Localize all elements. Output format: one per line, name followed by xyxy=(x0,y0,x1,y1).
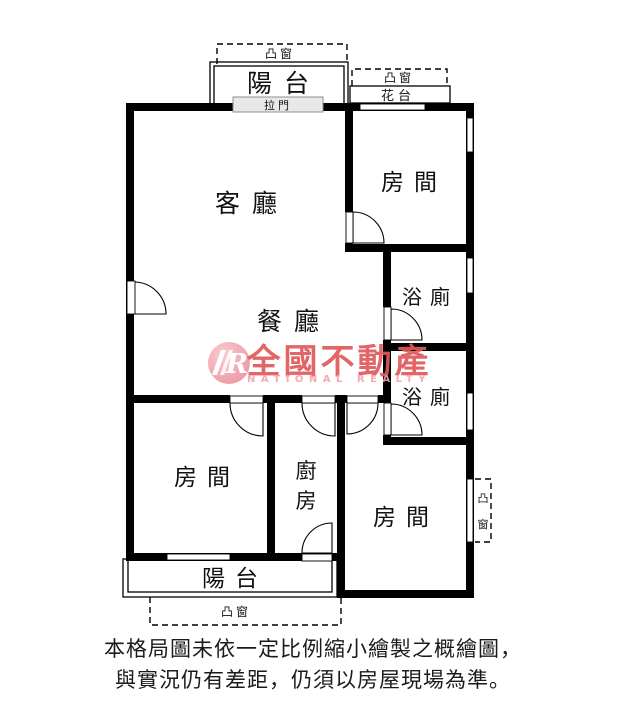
label-bay-window-top-right: 凸窗 xyxy=(384,71,414,85)
label-balcony-top: 陽台 xyxy=(247,69,321,98)
disclaimer-line-1: 本格局圖未依一定比例縮小繪製之概繪圖， xyxy=(0,634,626,665)
disclaimer: 本格局圖未依一定比例縮小繪製之概繪圖， 與實況仍有差距，仍須以房屋現場為準。 xyxy=(0,634,626,696)
bath-lower-door-panel xyxy=(384,403,391,435)
floorplan-drawing: 拉門 客廳 餐廳 房間 浴廁 浴廁 房間 房間 廚 xyxy=(0,0,626,725)
wall-bedroom-kitchen-divider xyxy=(267,395,275,561)
kitchen-balcony-door-swing xyxy=(302,523,332,553)
kitchen-top-door-panel xyxy=(302,396,335,403)
window-bath-upper-right xyxy=(467,258,473,293)
bedroom-r-door-panel xyxy=(347,396,378,403)
label-kitchen-char-1: 廚 xyxy=(296,459,317,483)
wall-room-tr-bottom xyxy=(345,244,474,252)
label-bathroom-lower: 浴廁 xyxy=(402,385,458,409)
bedroom-r-door-swing xyxy=(347,403,378,434)
label-bay-right-char-2: 窗 xyxy=(478,517,489,531)
label-living-room: 客廳 xyxy=(215,189,289,218)
room-tr-door-swing xyxy=(353,212,384,243)
wall-bath-bottom xyxy=(383,437,474,445)
label-room-top-right: 房間 xyxy=(381,170,447,196)
label-room-bottom-left: 房間 xyxy=(174,465,240,491)
wall-dining-bottom-a xyxy=(126,395,230,403)
window-room-tr-right xyxy=(467,118,473,152)
label-bay-window-bottom: 凸窗 xyxy=(221,605,251,619)
wall-dining-bottom-d xyxy=(378,395,391,403)
label-kitchen-char-2: 房 xyxy=(296,489,317,513)
wall-left xyxy=(126,103,134,561)
entry-door-swing xyxy=(134,282,166,314)
sliding-door-label: 拉門 xyxy=(264,98,292,112)
watermark-brand-en: NATIONAL REALTY xyxy=(247,374,431,385)
bedroom-l-door-swing xyxy=(230,403,263,436)
label-bay-window-right-vertical: 凸 窗 xyxy=(478,492,489,531)
label-bay-right-char-1: 凸 xyxy=(478,492,489,505)
disclaimer-line-2: 與實況仍有差距，仍須以房屋現場為準。 xyxy=(0,665,626,696)
bay-window-right-outline xyxy=(475,479,491,542)
kitchen-top-door-swing xyxy=(302,403,335,436)
floorplan-page: 拉門 客廳 餐廳 房間 浴廁 浴廁 房間 房間 廚 xyxy=(0,0,626,725)
label-bay-window-top-left: 凸窗 xyxy=(265,47,295,61)
watermark: R 全國不動產 NATIONAL REALTY xyxy=(208,342,432,385)
label-balcony-bottom: 陽台 xyxy=(202,566,268,592)
window-bedroom-l-bottom xyxy=(167,554,230,560)
window-bedroom-r-bay xyxy=(467,479,473,542)
entry-door-panel xyxy=(127,281,135,314)
label-room-bottom-right: 房間 xyxy=(373,505,439,531)
bath-upper-door-panel xyxy=(384,307,391,340)
kitchen-balcony-door-panel xyxy=(302,554,332,561)
wall-room-tr-left-upper xyxy=(345,103,353,212)
label-dining-room: 餐廳 xyxy=(257,307,331,336)
wall-bath-left-a xyxy=(383,244,391,307)
room-tr-door-panel xyxy=(346,212,353,243)
window-top xyxy=(360,104,425,110)
wall-kitchen-bedroom-r-divider xyxy=(337,395,345,598)
bedroom-l-door-panel xyxy=(230,396,263,403)
wall-bedroom-r-bottom xyxy=(337,590,474,598)
label-bathroom-upper: 浴廁 xyxy=(402,285,458,309)
label-kitchen-vertical: 廚 房 xyxy=(296,459,317,513)
watermark-logo-letter: R xyxy=(225,349,248,380)
window-bath-lower-right xyxy=(467,393,473,430)
label-flower-bed: 花台 xyxy=(381,88,415,104)
bath-upper-door-swing xyxy=(391,309,422,340)
